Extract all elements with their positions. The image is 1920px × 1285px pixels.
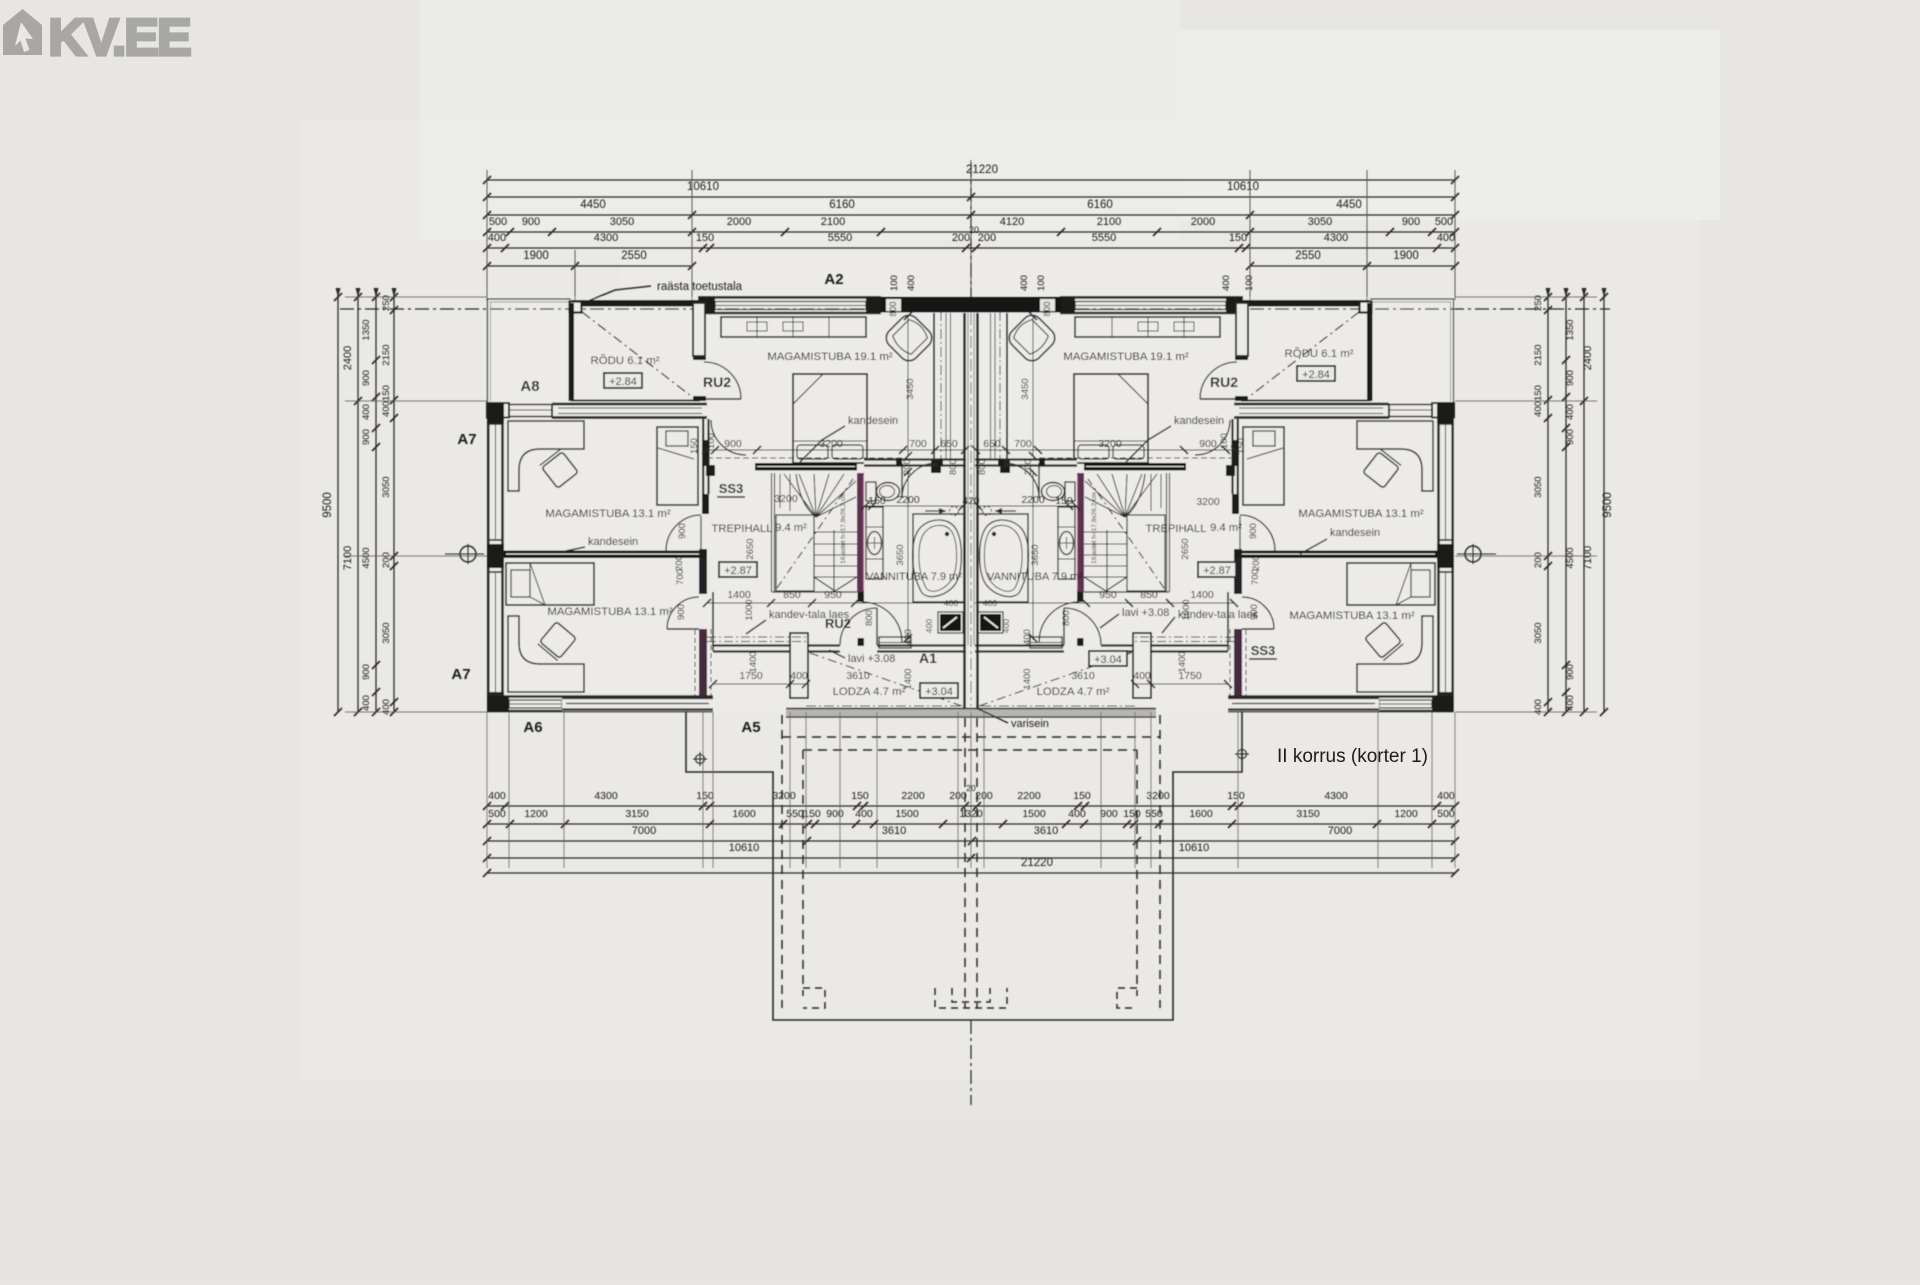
svg-text:800: 800 — [864, 610, 875, 626]
svg-text:RU2: RU2 — [703, 374, 731, 390]
svg-text:A6: A6 — [523, 719, 542, 736]
svg-text:II korrus (korter 1): II korrus (korter 1) — [1277, 746, 1428, 767]
svg-text:400: 400 — [903, 629, 914, 645]
svg-text:kandesein: kandesein — [588, 536, 638, 548]
svg-text:4120: 4120 — [1000, 216, 1024, 228]
svg-text:MAGAMISTUBA 13.1 m²: MAGAMISTUBA 13.1 m² — [1298, 508, 1424, 520]
svg-text:900: 900 — [522, 216, 540, 228]
svg-text:1400: 1400 — [903, 668, 914, 689]
svg-text:400: 400 — [361, 404, 372, 420]
svg-text:400: 400 — [1022, 629, 1033, 645]
svg-text:400: 400 — [790, 670, 808, 682]
svg-text:800: 800 — [888, 301, 898, 316]
svg-text:10610: 10610 — [1179, 842, 1210, 854]
svg-text:16 astet h=17,9x26,2 cm: 16 astet h=17,9x26,2 cm — [1091, 492, 1098, 563]
svg-text:500: 500 — [488, 808, 506, 820]
svg-text:raästa toetustala: raästa toetustala — [657, 281, 743, 293]
svg-text:lavi +3.08: lavi +3.08 — [848, 653, 895, 665]
svg-text:150: 150 — [1123, 808, 1141, 820]
svg-text:700: 700 — [1250, 569, 1261, 585]
svg-text:LODZA 4.7 m²: LODZA 4.7 m² — [833, 686, 906, 698]
svg-text:+2.84: +2.84 — [609, 376, 637, 388]
svg-text:200: 200 — [902, 459, 913, 475]
svg-text:1500: 1500 — [1022, 808, 1046, 820]
svg-text:4300: 4300 — [594, 790, 618, 802]
svg-text:+2.87: +2.87 — [724, 565, 752, 577]
svg-text:KV.EE: KV.EE — [48, 9, 190, 67]
svg-text:400: 400 — [361, 695, 372, 711]
svg-text:2200: 2200 — [1021, 494, 1045, 506]
svg-text:400: 400 — [1437, 232, 1455, 244]
svg-text:1750: 1750 — [1178, 670, 1202, 682]
svg-text:6160: 6160 — [829, 199, 855, 211]
svg-text:1000: 1000 — [744, 599, 755, 620]
svg-text:400: 400 — [1565, 404, 1576, 420]
svg-text:1000: 1000 — [1181, 599, 1192, 620]
svg-text:3450: 3450 — [905, 378, 916, 399]
svg-text:RU2: RU2 — [825, 616, 851, 631]
svg-text:2150: 2150 — [1533, 344, 1544, 365]
svg-text:550: 550 — [1145, 808, 1163, 820]
svg-text:MAGAMISTUBA 19.1 m²: MAGAMISTUBA 19.1 m² — [767, 351, 893, 363]
svg-text:1900: 1900 — [1393, 250, 1419, 262]
svg-text:2400: 2400 — [342, 346, 354, 370]
svg-text:3200: 3200 — [819, 438, 843, 450]
svg-text:150: 150 — [381, 385, 392, 401]
svg-text:900: 900 — [361, 429, 372, 445]
svg-text:5550: 5550 — [1092, 232, 1116, 244]
svg-text:3150: 3150 — [625, 808, 649, 820]
svg-text:2550: 2550 — [621, 250, 647, 262]
svg-text:A7: A7 — [451, 666, 470, 683]
svg-text:200: 200 — [674, 555, 685, 571]
svg-text:200: 200 — [1023, 459, 1034, 475]
svg-text:9.4 m²: 9.4 m² — [1210, 522, 1242, 534]
svg-text:400: 400 — [1533, 401, 1544, 417]
svg-text:SS3: SS3 — [1251, 643, 1276, 658]
svg-text:3050: 3050 — [381, 476, 392, 497]
svg-text:3610: 3610 — [846, 670, 870, 682]
svg-text:400: 400 — [1068, 808, 1086, 820]
svg-text:2150: 2150 — [381, 344, 392, 365]
svg-text:400: 400 — [855, 808, 873, 820]
svg-text:1750: 1750 — [739, 670, 763, 682]
svg-text:4300: 4300 — [594, 232, 618, 244]
svg-text:150: 150 — [1236, 438, 1247, 454]
svg-text:3050: 3050 — [381, 622, 392, 643]
svg-text:150: 150 — [689, 438, 700, 454]
svg-text:1400: 1400 — [1022, 668, 1033, 689]
svg-text:150: 150 — [868, 495, 886, 507]
svg-text:+3.04: +3.04 — [925, 686, 953, 698]
svg-text:3610: 3610 — [1034, 825, 1058, 837]
svg-text:900: 900 — [676, 604, 687, 620]
svg-text:6160: 6160 — [1087, 199, 1113, 211]
svg-text:900: 900 — [1565, 664, 1576, 680]
svg-text:100: 100 — [1036, 275, 1047, 291]
svg-text:7100: 7100 — [342, 546, 354, 570]
svg-text:3050: 3050 — [610, 216, 634, 228]
svg-text:5550: 5550 — [828, 232, 852, 244]
svg-text:2550: 2550 — [1295, 250, 1321, 262]
svg-text:4500: 4500 — [1565, 547, 1576, 568]
svg-text:500: 500 — [489, 216, 507, 228]
svg-text:1400: 1400 — [1190, 589, 1214, 601]
svg-text:3050: 3050 — [1308, 216, 1332, 228]
svg-text:150: 150 — [696, 232, 714, 244]
svg-text:3200: 3200 — [774, 493, 798, 505]
svg-text:400: 400 — [488, 790, 506, 802]
svg-text:400: 400 — [944, 598, 958, 608]
svg-text:2000: 2000 — [1191, 216, 1215, 228]
svg-text:2000: 2000 — [727, 216, 751, 228]
svg-text:900: 900 — [677, 523, 688, 539]
svg-text:850: 850 — [783, 589, 801, 601]
svg-text:400: 400 — [906, 275, 917, 291]
svg-text:3050: 3050 — [1533, 622, 1544, 643]
svg-text:4450: 4450 — [1336, 199, 1362, 211]
svg-text:500: 500 — [1437, 808, 1455, 820]
svg-text:3450: 3450 — [1020, 378, 1031, 399]
svg-text:1500: 1500 — [895, 808, 919, 820]
svg-text:7000: 7000 — [632, 825, 656, 837]
svg-text:850: 850 — [1140, 589, 1158, 601]
svg-text:+2.87: +2.87 — [1203, 565, 1231, 577]
svg-text:1200: 1200 — [1394, 808, 1418, 820]
svg-text:1600: 1600 — [732, 808, 756, 820]
svg-text:900: 900 — [361, 370, 372, 386]
svg-text:A5: A5 — [741, 719, 760, 736]
svg-text:9.4 m²: 9.4 m² — [775, 522, 807, 534]
svg-text:200: 200 — [1533, 552, 1544, 568]
svg-text:900: 900 — [1249, 604, 1260, 620]
svg-text:RÕDU 6.1 m²: RÕDU 6.1 m² — [591, 354, 660, 367]
svg-text:800: 800 — [1061, 610, 1072, 626]
svg-text:150: 150 — [851, 790, 869, 802]
svg-text:900: 900 — [1100, 808, 1118, 820]
svg-text:400: 400 — [381, 401, 392, 417]
svg-text:4300: 4300 — [1324, 790, 1348, 802]
svg-text:800: 800 — [1042, 301, 1052, 316]
svg-text:LODZA 4.7 m²: LODZA 4.7 m² — [1037, 686, 1110, 698]
svg-text:kandesein: kandesein — [848, 415, 898, 427]
svg-text:TREPIHALL: TREPIHALL — [712, 523, 773, 535]
svg-text:150: 150 — [1533, 385, 1544, 401]
svg-text:3150: 3150 — [1296, 808, 1320, 820]
svg-text:400: 400 — [1533, 699, 1544, 715]
svg-text:3200: 3200 — [1146, 790, 1170, 802]
svg-text:kandesein: kandesein — [1330, 527, 1380, 539]
svg-text:900: 900 — [1565, 370, 1576, 386]
svg-text:400: 400 — [924, 619, 934, 633]
svg-text:100: 100 — [1219, 433, 1230, 449]
svg-text:400: 400 — [983, 598, 997, 608]
svg-text:400: 400 — [1565, 695, 1576, 711]
svg-text:3610: 3610 — [1071, 670, 1095, 682]
svg-text:2650: 2650 — [1180, 538, 1191, 559]
svg-text:550: 550 — [786, 808, 804, 820]
svg-text:+3.04: +3.04 — [1094, 654, 1122, 666]
svg-text:900: 900 — [1565, 429, 1576, 445]
svg-text:500: 500 — [1435, 216, 1453, 228]
svg-text:varisein: varisein — [1011, 718, 1049, 730]
svg-text:150: 150 — [1055, 495, 1073, 507]
svg-text:+2.84: +2.84 — [1302, 369, 1330, 381]
svg-text:3650: 3650 — [895, 544, 906, 565]
svg-text:800: 800 — [977, 459, 988, 475]
svg-text:MAGAMISTUBA 13.1 m²: MAGAMISTUBA 13.1 m² — [1289, 610, 1415, 622]
svg-text:10610: 10610 — [729, 842, 760, 854]
svg-text:400: 400 — [1001, 619, 1011, 633]
svg-text:150: 150 — [1227, 790, 1245, 802]
svg-text:400: 400 — [1019, 275, 1030, 291]
svg-text:950: 950 — [1099, 589, 1117, 601]
svg-text:420: 420 — [962, 495, 980, 507]
svg-text:900: 900 — [1248, 523, 1259, 539]
svg-text:A1: A1 — [919, 650, 937, 666]
svg-text:SS3: SS3 — [719, 481, 744, 496]
svg-text:1600: 1600 — [1189, 808, 1213, 820]
svg-text:800: 800 — [948, 459, 959, 475]
svg-text:4450: 4450 — [580, 199, 606, 211]
svg-text:2100: 2100 — [821, 216, 845, 228]
svg-text:400: 400 — [381, 699, 392, 715]
svg-text:lavi +3.08: lavi +3.08 — [1122, 607, 1169, 619]
svg-text:700: 700 — [909, 438, 927, 450]
svg-text:400: 400 — [488, 232, 506, 244]
svg-text:700: 700 — [675, 569, 686, 585]
svg-text:150: 150 — [1073, 790, 1091, 802]
svg-text:950: 950 — [824, 589, 842, 601]
svg-text:900: 900 — [361, 664, 372, 680]
svg-text:1350: 1350 — [1565, 319, 1576, 340]
svg-text:MAGAMISTUBA 13.1 m²: MAGAMISTUBA 13.1 m² — [545, 508, 671, 520]
svg-text:4300: 4300 — [1324, 232, 1348, 244]
svg-text:2200: 2200 — [1017, 790, 1041, 802]
svg-text:150: 150 — [696, 790, 714, 802]
svg-text:7100: 7100 — [1582, 546, 1594, 570]
svg-text:3200: 3200 — [1196, 496, 1220, 508]
svg-text:400: 400 — [1437, 790, 1455, 802]
svg-text:2650: 2650 — [745, 538, 756, 559]
svg-text:21220: 21220 — [1021, 857, 1053, 869]
svg-text:2400: 2400 — [1582, 346, 1594, 370]
svg-text:650: 650 — [983, 438, 1001, 450]
svg-text:3650: 3650 — [1030, 544, 1041, 565]
svg-text:A7: A7 — [457, 431, 476, 448]
svg-text:1350: 1350 — [361, 319, 372, 340]
svg-text:2200: 2200 — [901, 790, 925, 802]
svg-text:900: 900 — [724, 438, 742, 450]
svg-text:200: 200 — [978, 232, 996, 244]
svg-text:TREPIHALL: TREPIHALL — [1146, 523, 1207, 535]
svg-text:A2: A2 — [824, 271, 843, 288]
svg-text:3610: 3610 — [882, 825, 906, 837]
svg-text:100: 100 — [889, 275, 900, 291]
svg-text:200: 200 — [1251, 555, 1262, 571]
svg-text:200: 200 — [952, 232, 970, 244]
svg-text:3050: 3050 — [1533, 476, 1544, 497]
svg-text:400: 400 — [1133, 670, 1151, 682]
svg-text:900: 900 — [826, 808, 844, 820]
svg-text:VANNITUBA 7.9 m²: VANNITUBA 7.9 m² — [866, 571, 962, 583]
svg-text:9500: 9500 — [1602, 492, 1614, 518]
svg-text:900: 900 — [1402, 216, 1420, 228]
svg-text:RÕDU 6.1 m²: RÕDU 6.1 m² — [1285, 347, 1354, 360]
svg-text:2200: 2200 — [896, 494, 920, 506]
svg-text:1900: 1900 — [523, 250, 549, 262]
svg-text:10610: 10610 — [1227, 181, 1259, 193]
svg-text:200: 200 — [381, 552, 392, 568]
svg-text:100: 100 — [1244, 275, 1255, 291]
svg-text:400: 400 — [1221, 275, 1232, 291]
svg-text:1400: 1400 — [727, 589, 751, 601]
svg-text:3200: 3200 — [1098, 438, 1122, 450]
svg-text:MAGAMISTUBA 19.1 m²: MAGAMISTUBA 19.1 m² — [1063, 351, 1189, 363]
svg-text:VANNITUBA 7.9 m²: VANNITUBA 7.9 m² — [987, 571, 1083, 583]
svg-text:900: 900 — [1199, 438, 1217, 450]
svg-text:100: 100 — [706, 433, 717, 449]
svg-text:2100: 2100 — [1097, 216, 1121, 228]
svg-text:700: 700 — [1014, 438, 1032, 450]
svg-text:RU2: RU2 — [1210, 374, 1238, 390]
svg-text:7000: 7000 — [1328, 825, 1352, 837]
svg-text:3200: 3200 — [772, 790, 796, 802]
svg-text:A8: A8 — [520, 378, 539, 395]
svg-text:150: 150 — [1229, 232, 1247, 244]
svg-text:MAGAMISTUBA 13.1 m²: MAGAMISTUBA 13.1 m² — [547, 606, 673, 618]
svg-text:1200: 1200 — [524, 808, 548, 820]
svg-text:16 astet h=17,9x26,2 cm: 16 astet h=17,9x26,2 cm — [840, 492, 847, 563]
svg-text:9500: 9500 — [322, 492, 334, 518]
svg-text:650: 650 — [940, 438, 958, 450]
svg-text:kandesein: kandesein — [1174, 415, 1224, 427]
svg-text:4500: 4500 — [361, 547, 372, 568]
